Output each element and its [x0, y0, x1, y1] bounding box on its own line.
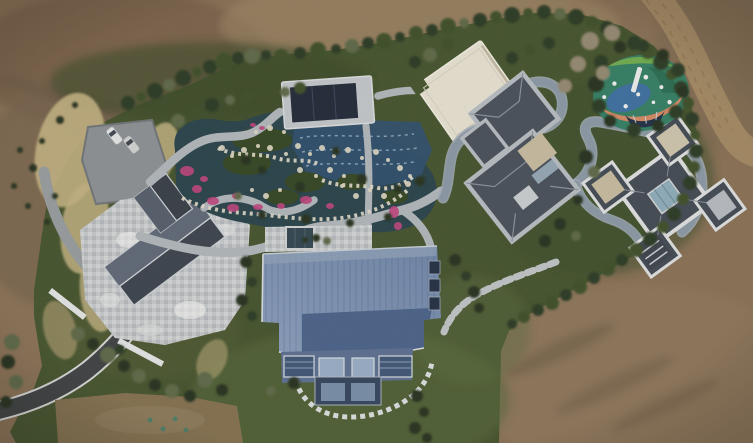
- vignette: [0, 0, 753, 443]
- aerial-photo: [0, 0, 753, 443]
- aerial-photo-stage: [0, 0, 753, 443]
